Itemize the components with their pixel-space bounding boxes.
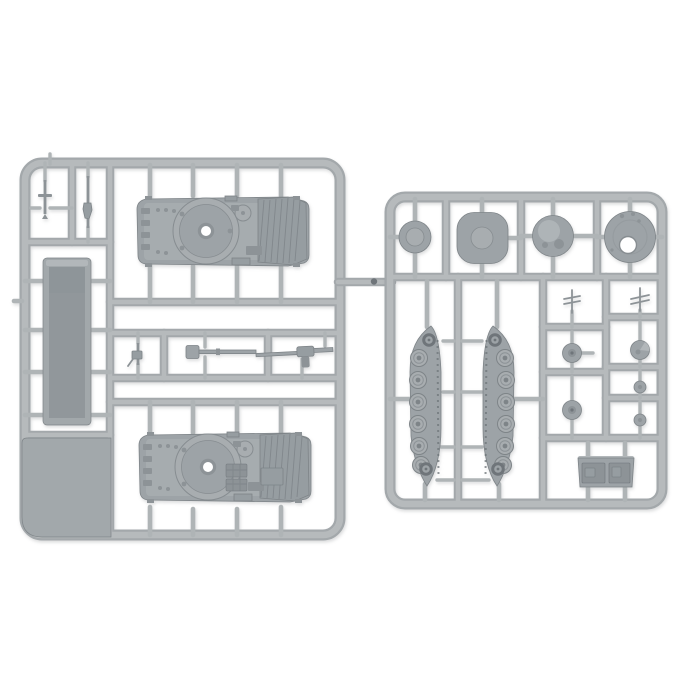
flotation-panel-part: [22, 438, 111, 537]
track-run-right-part: [483, 326, 515, 486]
pin-rod-part: [83, 176, 92, 228]
road-wheel-part-a: [563, 344, 582, 363]
tank-hull-part-lower: [139, 432, 311, 503]
photo-stage: [0, 0, 700, 700]
dagger-rod-part: [38, 180, 52, 219]
machine-gun-part: [128, 343, 142, 366]
turret-base-plate-part: [605, 212, 656, 263]
turret-disc-large-part: [457, 213, 508, 264]
road-wheel-part-b: [563, 401, 582, 420]
small-wheel-part-b: [634, 414, 646, 426]
ejector-mark: [371, 278, 377, 284]
left-sprue: [14, 154, 340, 537]
stowage-bin-part: [578, 456, 634, 487]
tank-hull-part-upper: [137, 196, 309, 267]
sprue-photo: [0, 0, 700, 700]
right-sprue: [390, 197, 662, 504]
turret-top-hatch-disc-part: [533, 216, 574, 257]
long-gun-barrel-part: [186, 346, 256, 359]
hull-tub-part: [43, 258, 91, 425]
track-run-left-part: [410, 326, 442, 486]
turret-disc-small-part: [399, 221, 431, 253]
sprue-connector-runner: [338, 278, 392, 284]
whip-antenna-part-b: [631, 288, 649, 311]
whip-antenna-part-a: [564, 290, 580, 313]
hatch-wheel-part: [631, 341, 650, 360]
small-wheel-part-a: [634, 381, 646, 393]
